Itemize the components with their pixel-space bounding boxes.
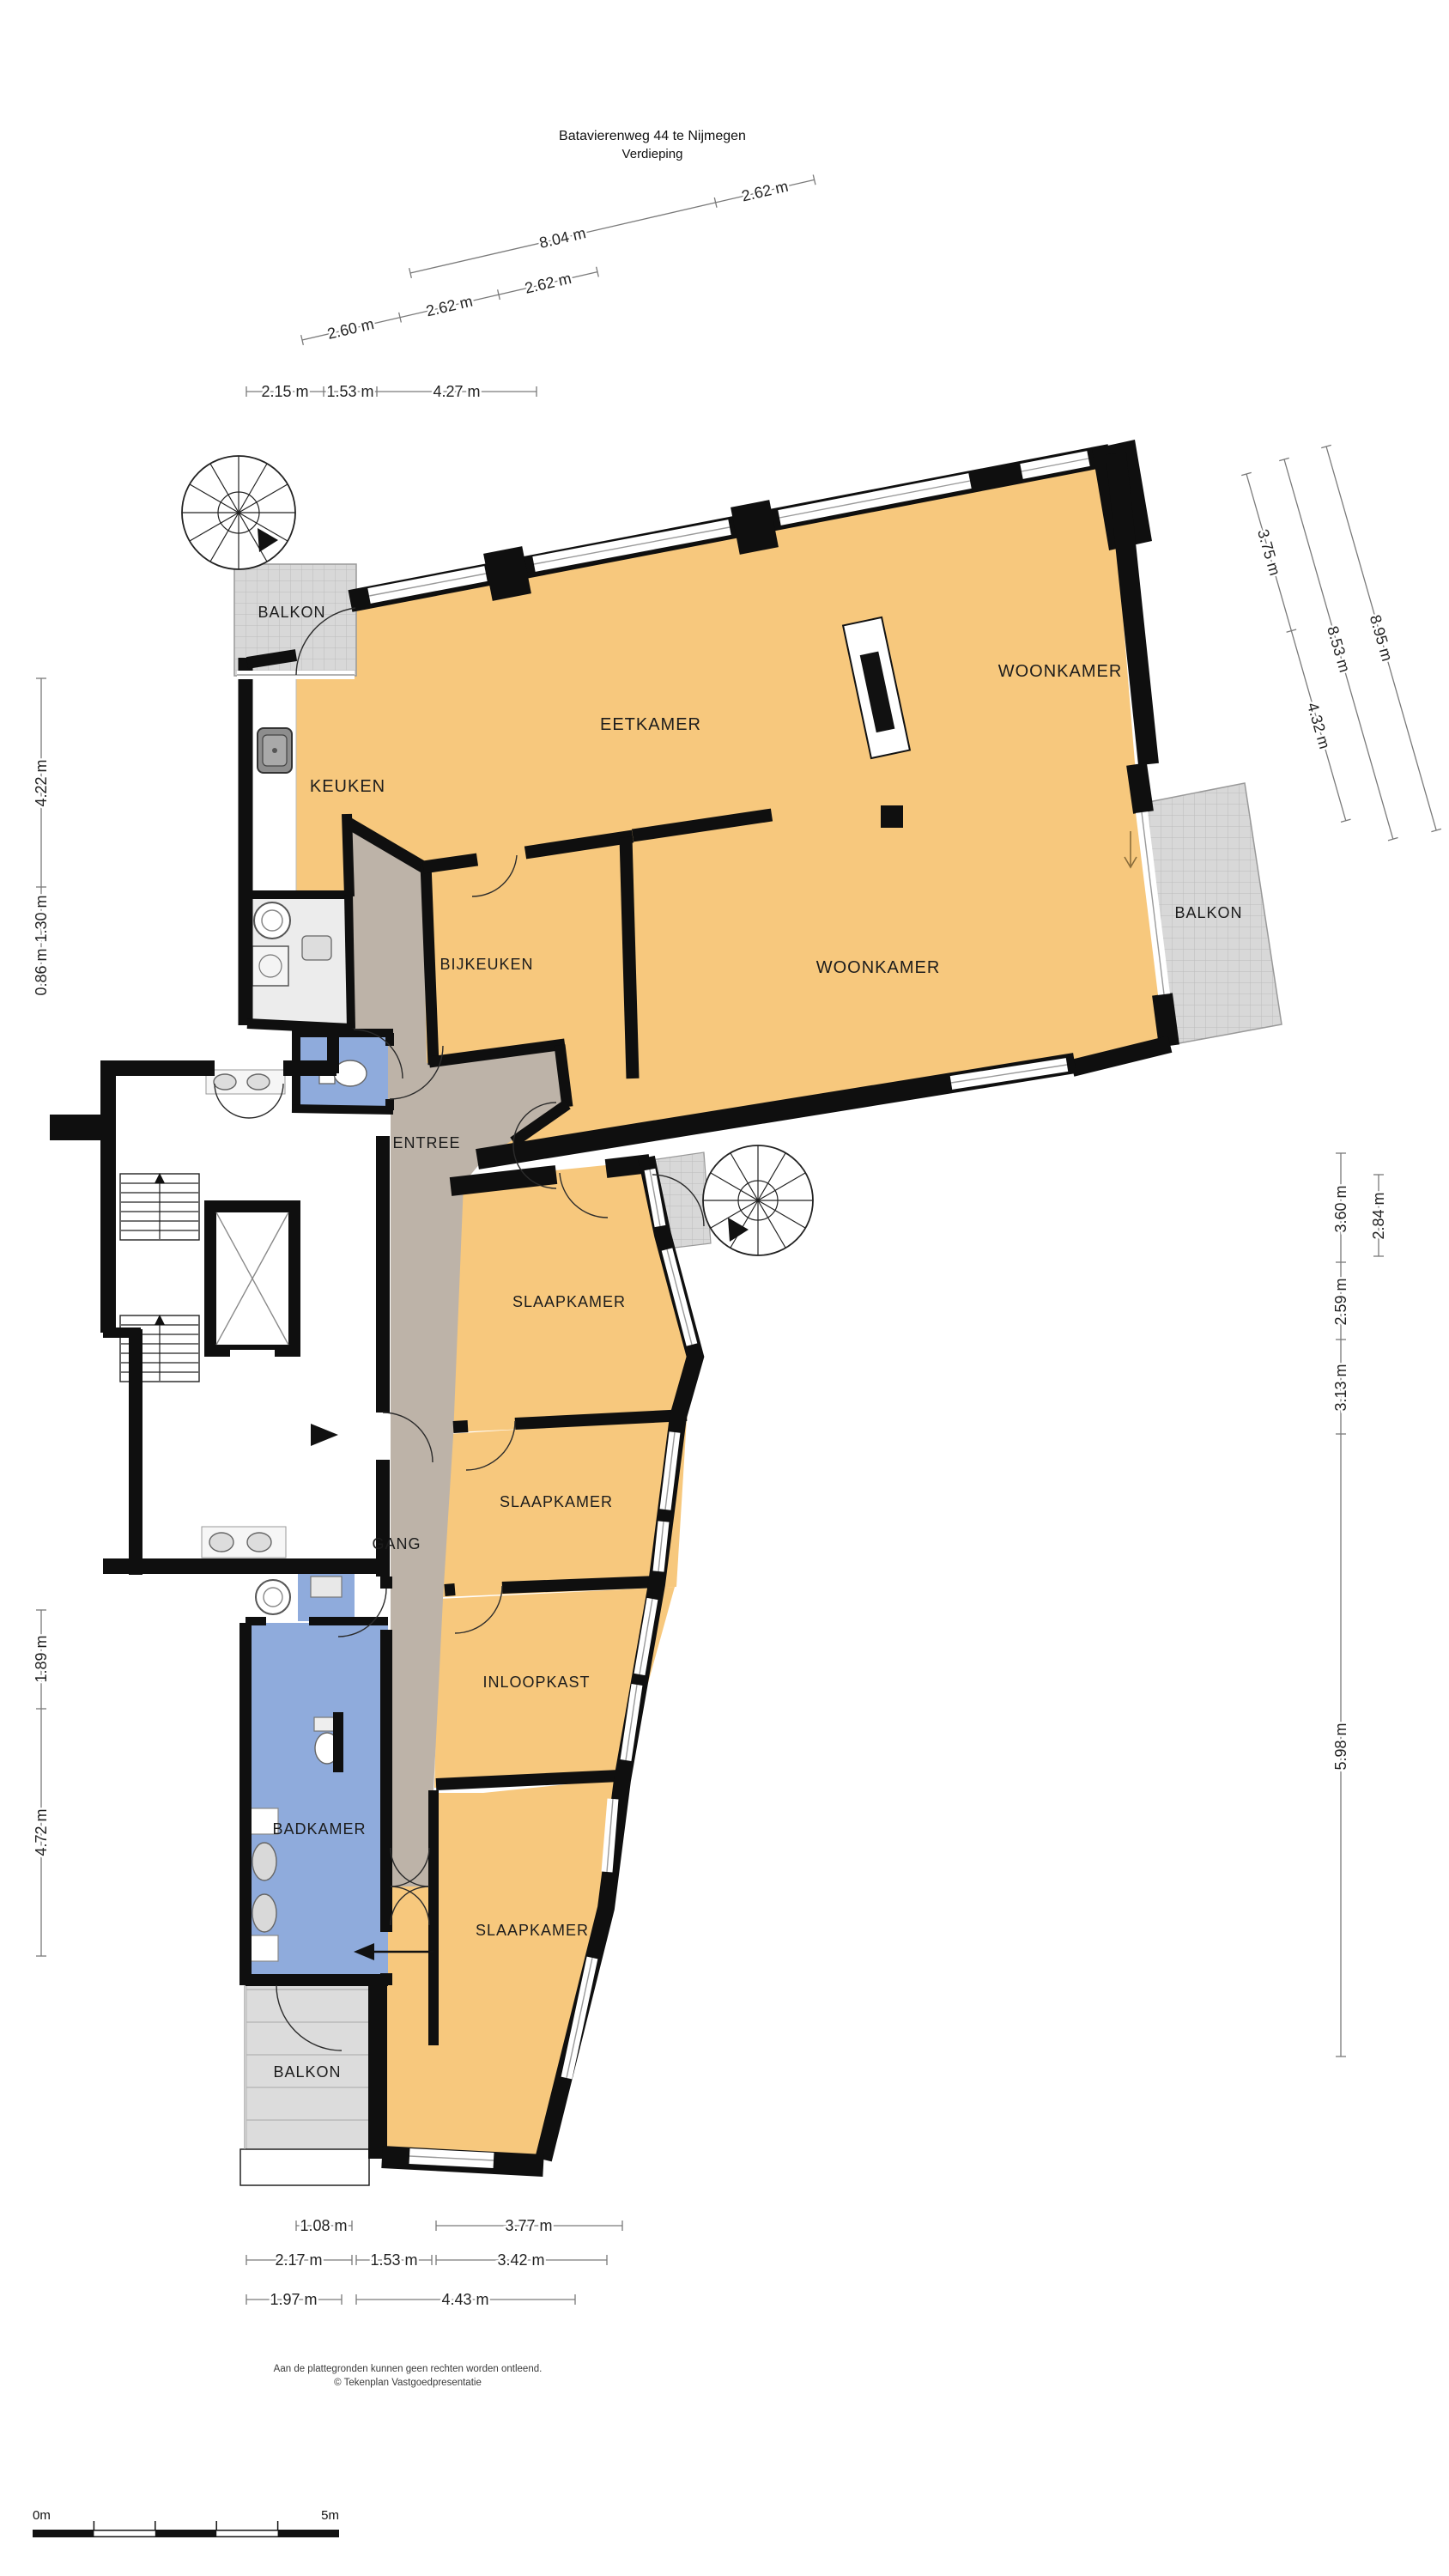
room-label-eetkamer: EETKAMER [600,715,701,734]
page-title: Batavierenweg 44 te Nijmegen [559,129,746,143]
wall-divider-stub [881,805,903,828]
kitchen-counter [252,661,296,895]
washbasin-counter-top [206,1070,285,1094]
washbasin-icon [247,1074,270,1090]
dim-label: 4.43 m [441,2291,488,2308]
room-label-keuken: KEUKEN [310,777,385,796]
dim-label: 1.30 m [33,895,50,942]
bathtub-basin-icon [252,1843,276,1880]
wall-toilet-bottom [292,1109,393,1110]
dim-label: 3.60 m [1332,1185,1349,1232]
wall-bijkeuken-bottom-b [560,1045,567,1107]
washing-machine-icon [256,1580,290,1614]
dim-label: 1.08 m [300,2217,347,2234]
dim-label: 2.17 m [275,2251,322,2269]
room-label-balkon-tl: BALKON [258,604,325,621]
entry-arrow-icon [311,1424,338,1446]
wall-bijkeuken-right [626,837,633,1078]
title-block: Batavierenweg 44 te Nijmegen Verdieping [559,129,746,161]
dim-label: 8.95 m [1367,613,1396,663]
room-label-woonkamer-boven: WOONKAMER [998,662,1123,681]
dim-label: 1.53 m [370,2251,417,2269]
room-label-badkamer: BADKAMER [272,1820,366,1838]
wall-utility-right [349,895,351,1029]
dim-label: 0.86 m [33,948,50,995]
dim-label: 1.89 m [33,1635,50,1682]
footer: Aan de plattegronden kunnen geen rechten… [274,2364,543,2388]
kitchen-fixtures [258,728,292,773]
stair-flight-upper [120,1173,199,1240]
stairwell-communal [120,1070,300,1558]
scale-start-label: 0m [33,2508,51,2523]
scale-bar-segment-white [94,2531,155,2537]
dim-label: 2.60 m [325,315,375,343]
dim-label: 3.13 m [1332,1364,1349,1411]
washbasin-icon [209,1533,233,1552]
dim-label: 4.32 m [1304,701,1333,750]
dim-right-vertical-short: 2.84 m [1370,1175,1387,1256]
dim-label: 2.62 m [740,178,790,205]
dim-label: 2.62 m [424,292,474,319]
footer-disclaimer: Aan de plattegronden kunnen geen rechten… [274,2364,543,2374]
page-subtitle: Verdieping [622,147,683,161]
dim-label: 2.62 m [523,270,573,297]
dim-label: 2.15 m [261,383,308,400]
dim-label: 2.84 m [1370,1192,1387,1239]
wall-s2-kast-b [502,1582,659,1588]
room-label-inloopkast: INLOOPKAST [482,1674,590,1691]
room-label-balkon-rechts: BALKON [1174,904,1242,921]
footer-copyright: © Tekenplan Vastgoedpresentatie [334,2378,482,2388]
room-label-balkon-bl: BALKON [273,2063,341,2081]
bathtub-basin-icon [252,1894,276,1932]
dim-left-lower: 1.89 m 4.72 m [33,1610,50,1956]
dim-label: 4.27 m [433,383,480,400]
dim-right-vertical: 3.60 m 2.59 m 3.13 m 5.98 m [1332,1153,1349,2057]
dim-label: 4.72 m [33,1808,50,1856]
wall-s2-kast-a [445,1589,455,1590]
scale-bar-rect [33,2530,339,2537]
wall-utility-bottom [247,1024,351,1029]
room-label-slaapkamer-2: SLAAPKAMER [500,1493,613,1510]
dim-bottom-row2: 2.17 m 1.53 m 3.42 m [246,2251,607,2269]
dim-bottom-row3: 1.97 m 4.43 m [246,2291,575,2308]
floorplan-canvas: Batavierenweg 44 te Nijmegen Verdieping [0,0,1449,2576]
appliance-icon [252,946,288,986]
wall-bijkeuken-top-a [423,860,477,867]
dim-label: 1.53 m [326,383,373,400]
elevator-door [230,1350,275,1358]
dim-label: 8.53 m [1324,624,1353,674]
dim-label: 8.04 m [537,224,587,252]
scale-bar: 0m 5m [33,2508,339,2537]
dim-top-diagonal-b: 2.60 m 2.62 m 2.62 m [300,264,599,349]
dim-label: 3.75 m [1254,527,1283,577]
washbasin-icon [247,1533,271,1552]
dim-label: 2.59 m [1332,1278,1349,1325]
window-east-4 [658,1522,664,1571]
window-east-7 [607,1799,613,1872]
dim-label: 1.97 m [270,2291,317,2308]
washbasin-icon [214,1074,236,1090]
scale-end-label: 5m [321,2508,339,2523]
room-label-slaapkamer-3: SLAAPKAMER [476,1922,589,1939]
room-label-bijkeuken: BIJKEUKEN [440,956,533,973]
room-label-woonkamer: WOONKAMER [816,958,941,977]
dim-label: 5.98 m [1332,1722,1349,1770]
spiral-stair-middle [703,1145,813,1255]
room-label-slaapkamer-1: SLAAPKAMER [512,1293,626,1310]
dim-bottom-row1: 1.08 m 3.77 m [296,2217,622,2234]
washbasin-counter-bottom [202,1527,286,1558]
room-label-entree: ENTREE [392,1134,460,1151]
wall-bijkeuken-left [426,864,433,1065]
wall-west-wing-stub [50,1115,110,1140]
wall-s1-s2-a [453,1426,468,1427]
dim-label: 4.22 m [33,759,50,806]
dim-left-upper: 4.22 m 1.30 m 0.86 m [33,678,50,996]
kitchen-faucet-icon [272,748,277,753]
spiral-stair-top-left [182,456,295,569]
shower-tray-icon [249,1935,278,1961]
dim-top-horizontal: 2.15 m 1.53 m 4.27 m [246,383,537,400]
dim-label: 3.77 m [505,2217,552,2234]
window-south [409,2156,494,2160]
scale-bar-segment-white [216,2531,277,2537]
utility-sink-icon [302,936,331,960]
wall-s1-s2-b [515,1415,687,1424]
dim-top-diagonal-a: 8.04 m 2.62 m [409,172,816,282]
elevator [204,1200,300,1358]
shower-partition-wall [333,1712,343,1772]
balcony-bottom-ledge [240,2149,369,2185]
washing-machine-icon [254,902,290,939]
wall-kast-s3 [436,1776,620,1784]
washbasin-icon [311,1577,342,1597]
wall-east-stub [1137,764,1143,812]
room-label-gang: GANG [372,1535,421,1552]
dim-label: 3.42 m [497,2251,544,2269]
floorplan-page: Batavierenweg 44 te Nijmegen Verdieping [0,0,1449,2576]
wall-kitchen-top-left [247,655,296,663]
